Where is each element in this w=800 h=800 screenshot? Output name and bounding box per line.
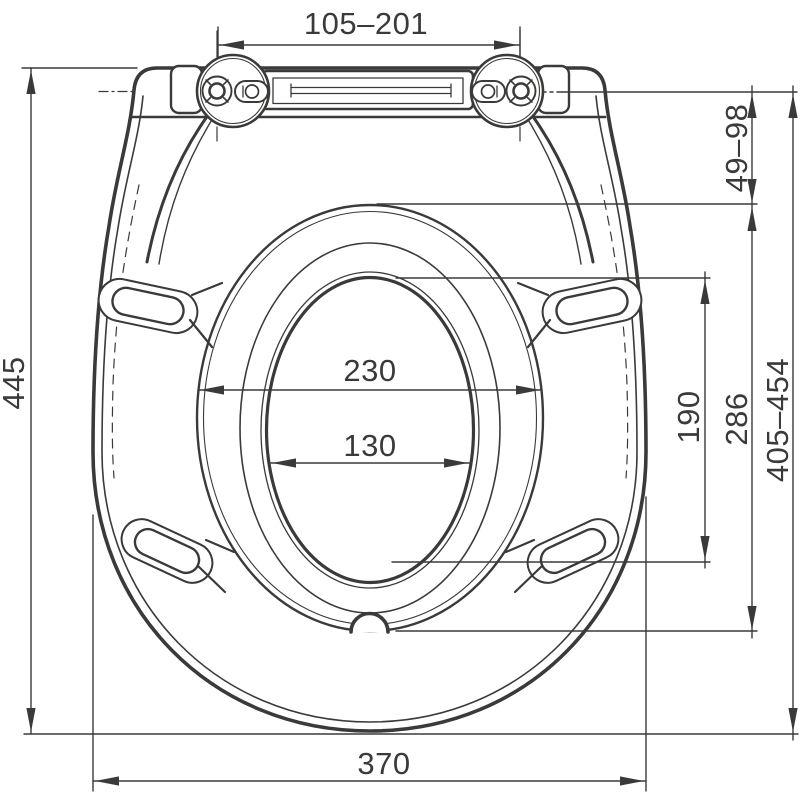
dim-label-recess-length: 286 — [719, 392, 754, 445]
dim-label-hinge-spacing: 105–201 — [304, 6, 428, 41]
hinge-bar — [262, 71, 473, 109]
dim-label-hinge-to-front: 405–454 — [760, 358, 795, 482]
dim-label-recess-width: 230 — [343, 353, 396, 388]
dim-label-total-length: 445 — [0, 356, 31, 409]
dim-label-total-width: 370 — [357, 746, 410, 781]
dim-label-hinge-to-recess: 49–98 — [719, 104, 754, 193]
drawing-canvas: 105–201 445 370 230 130 49–98 190 286 40… — [0, 0, 800, 800]
toilet-seat-dimension-drawing: 105–201 445 370 230 130 49–98 190 286 40… — [0, 0, 800, 800]
hinge-right-slide-pin — [482, 85, 495, 98]
dim-label-opening-length: 190 — [671, 390, 706, 443]
hinge-left-slide-pin — [246, 85, 259, 98]
dim-label-opening-width: 130 — [343, 428, 396, 463]
